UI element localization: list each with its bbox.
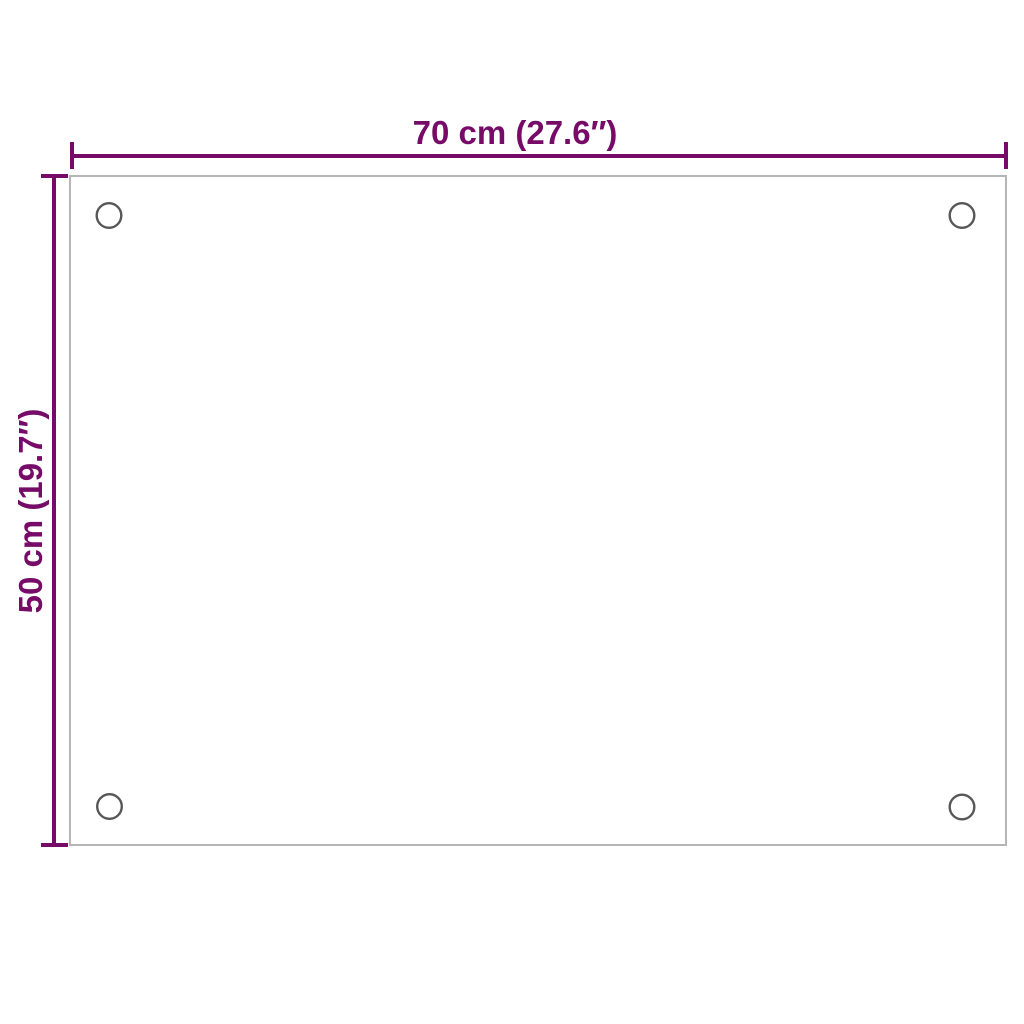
svg-text:50 cm (19.7″): 50 cm (19.7″) — [12, 409, 49, 614]
svg-text:70 cm (27.6″): 70 cm (27.6″) — [413, 114, 618, 151]
